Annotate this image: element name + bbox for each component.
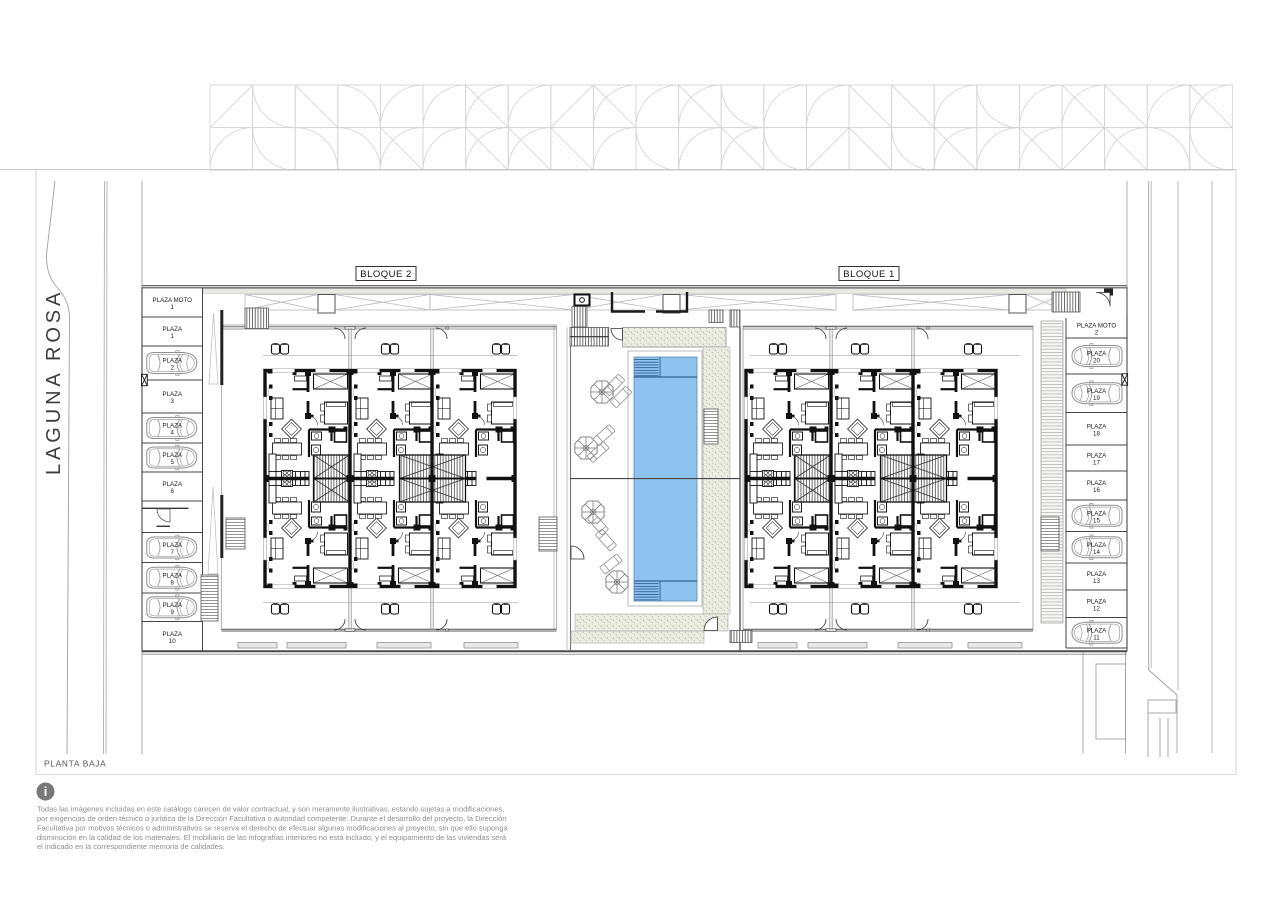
svg-text:11: 11 — [1093, 634, 1100, 641]
svg-text:Todas las imágenes incluidas e: Todas las imágenes incluidas en este cat… — [37, 805, 504, 814]
svg-text:PLAZA: PLAZA — [162, 602, 182, 609]
svg-text:PLAZA: PLAZA — [162, 452, 182, 459]
svg-text:PLANTA BAJA: PLANTA BAJA — [44, 759, 106, 769]
svg-text:PLAZA: PLAZA — [162, 542, 182, 549]
svg-text:LAGUNA ROSA: LAGUNA ROSA — [43, 289, 65, 475]
svg-text:14: 14 — [1093, 549, 1100, 556]
svg-text:PLAZA: PLAZA — [1087, 510, 1107, 517]
svg-text:4: 4 — [171, 430, 175, 437]
svg-text:PLAZA MOTO: PLAZA MOTO — [153, 297, 193, 304]
svg-text:PLAZA: PLAZA — [1087, 388, 1107, 395]
svg-text:10: 10 — [169, 638, 176, 645]
svg-text:1: 1 — [171, 304, 175, 311]
svg-text:9: 9 — [171, 609, 175, 616]
svg-text:5: 5 — [171, 459, 175, 466]
svg-text:6: 6 — [171, 488, 175, 495]
svg-text:PLAZA: PLAZA — [162, 572, 182, 579]
svg-text:20: 20 — [1093, 358, 1100, 365]
svg-text:18: 18 — [1093, 430, 1100, 437]
svg-text:el indicado en la correspondie: el indicado en la correspondiente memori… — [37, 842, 225, 851]
svg-text:por exigencias de orden técni: por exigencias de orden técnico o jurídi… — [37, 814, 506, 823]
svg-text:Facultativa por motivos técnic: Facultativa por motivos técnicos o admin… — [37, 823, 508, 832]
svg-text:PLAZA: PLAZA — [162, 481, 182, 488]
svg-text:i: i — [44, 784, 48, 799]
svg-text:2: 2 — [1095, 330, 1099, 337]
svg-text:7: 7 — [171, 549, 175, 556]
svg-text:12: 12 — [1093, 605, 1100, 612]
svg-text:BLOQUE 1: BLOQUE 1 — [843, 269, 895, 280]
svg-text:PLAZA: PLAZA — [1087, 542, 1107, 549]
svg-text:8: 8 — [171, 579, 175, 586]
svg-text:PLAZA: PLAZA — [162, 423, 182, 430]
svg-text:PLAZA: PLAZA — [1087, 627, 1107, 634]
svg-text:15: 15 — [1093, 517, 1100, 524]
svg-text:PLAZA: PLAZA — [162, 391, 182, 398]
svg-text:PLAZA: PLAZA — [1087, 351, 1107, 358]
svg-text:PLAZA MOTO: PLAZA MOTO — [1077, 323, 1117, 330]
svg-text:PLAZA: PLAZA — [1087, 598, 1107, 605]
svg-text:2: 2 — [171, 365, 175, 372]
svg-text:PLAZA: PLAZA — [1087, 480, 1107, 487]
svg-text:3: 3 — [171, 398, 175, 405]
svg-text:BLOQUE 2: BLOQUE 2 — [360, 269, 412, 280]
svg-text:PLAZA: PLAZA — [162, 326, 182, 333]
svg-text:17: 17 — [1093, 460, 1100, 467]
svg-text:PLAZA: PLAZA — [1087, 423, 1107, 430]
svg-text:1: 1 — [171, 333, 175, 340]
svg-text:PLAZA: PLAZA — [162, 358, 182, 365]
svg-text:disminución en la calidad de: disminución en la calidad de los materia… — [37, 833, 507, 842]
svg-text:13: 13 — [1093, 578, 1100, 585]
svg-text:PLAZA: PLAZA — [1087, 453, 1107, 460]
svg-text:19: 19 — [1093, 395, 1100, 402]
svg-text:16: 16 — [1093, 487, 1100, 494]
svg-text:PLAZA: PLAZA — [162, 631, 182, 638]
svg-text:PLAZA: PLAZA — [1087, 571, 1107, 578]
